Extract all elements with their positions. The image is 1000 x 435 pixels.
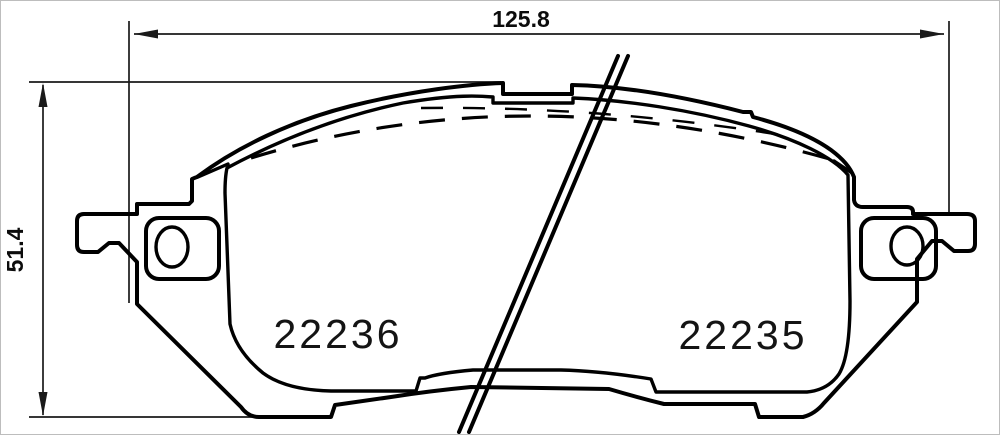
diagonal-line-1	[459, 56, 618, 432]
arrowhead-up-icon	[39, 83, 48, 107]
diagonal-line-2	[469, 56, 628, 432]
right-mounting-hole	[891, 227, 923, 265]
technical-drawing-canvas: 125.8 51.4 2	[0, 0, 1000, 435]
part-number-right: 22235	[678, 312, 807, 358]
brake-pad-drawing: 125.8 51.4 2	[1, 1, 1000, 435]
diagonal-reference-line	[459, 56, 628, 432]
left-mounting-hole	[156, 227, 188, 267]
backing-plate-outline	[77, 83, 975, 417]
hidden-edge-dashes	[251, 116, 840, 162]
part-number-left: 22236	[273, 311, 402, 357]
dimension-width-label: 125.8	[492, 6, 550, 32]
arrowhead-right-icon	[920, 30, 944, 39]
arrowhead-down-icon	[39, 392, 48, 416]
arrowhead-left-icon	[134, 30, 158, 39]
dimension-height-label: 51.4	[2, 227, 28, 272]
